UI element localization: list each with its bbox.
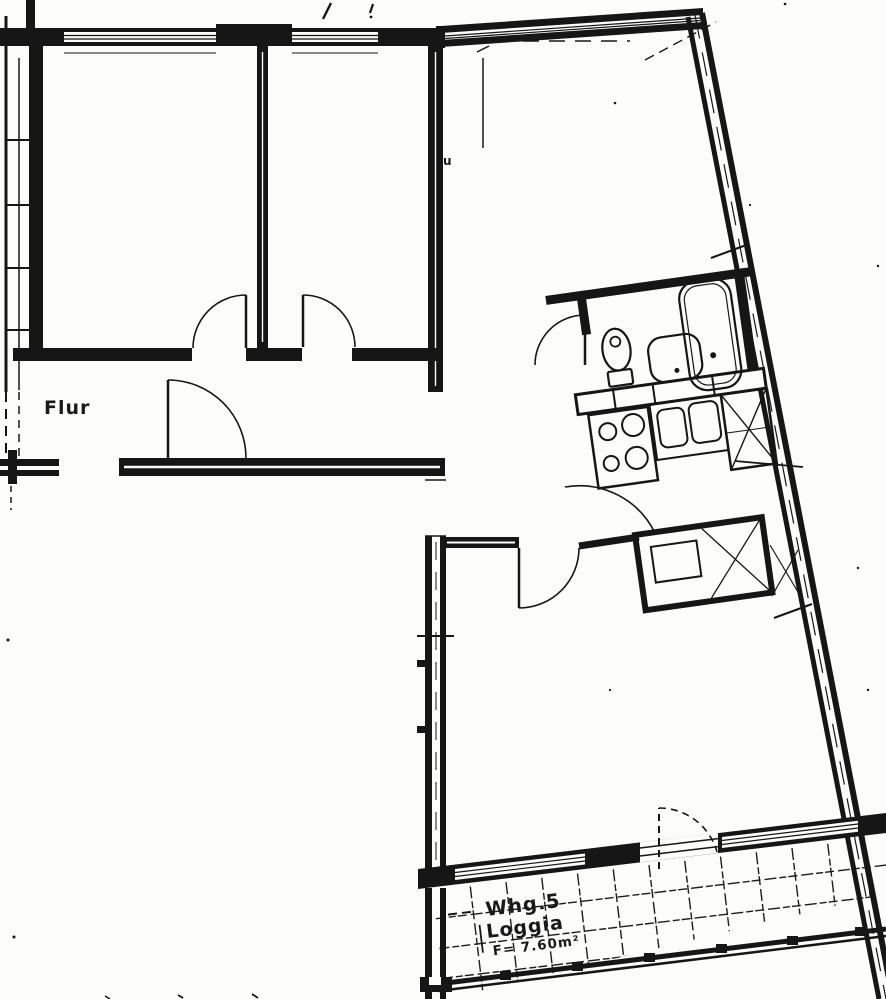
living-room-door-wall [443, 537, 519, 548]
bathroom-door-swing [535, 315, 585, 365]
shelf [651, 541, 702, 583]
floor-plan: Flur u Whg.5 Loggia F= 7.60m² [0, 0, 886, 999]
toilet-fixture [600, 327, 636, 387]
wall-tick [711, 244, 749, 258]
entrance-door-swing [168, 380, 246, 458]
bathroom-north-wall [545, 267, 754, 305]
north-wall-slanted [436, 8, 716, 148]
window [64, 32, 216, 42]
balcony-door-opening [640, 833, 718, 862]
bathroom-block [545, 267, 781, 492]
window [292, 32, 378, 42]
bedroom1-door-swing [193, 295, 246, 348]
hallway-north-wall [13, 348, 443, 361]
bedroom-west-wall [29, 46, 43, 358]
shaft-line [735, 461, 803, 467]
bedroom2-door-swing [303, 295, 355, 347]
stove-fixture [588, 407, 658, 489]
bedroom-east-wall [428, 46, 443, 392]
labels: Flur u Whg.5 Loggia F= 7.60m² [44, 154, 581, 964]
living-partition-wall [417, 480, 454, 999]
wall-mark-label: u [443, 154, 452, 168]
kitchen-door-swing [565, 486, 655, 533]
north-wall [0, 0, 445, 53]
south-wall [418, 813, 886, 889]
kitchen-partition-wall [579, 537, 639, 546]
hallway-label: Flur [44, 397, 90, 419]
floor-plan-page: Flur u Whg.5 Loggia F= 7.60m² [0, 0, 886, 999]
west-boundary-wall [0, 16, 59, 510]
bedroom-divider-wall [257, 46, 268, 348]
living-door-swing [519, 548, 579, 608]
pantry-room [635, 517, 772, 610]
hallway-south-wall [119, 458, 445, 476]
